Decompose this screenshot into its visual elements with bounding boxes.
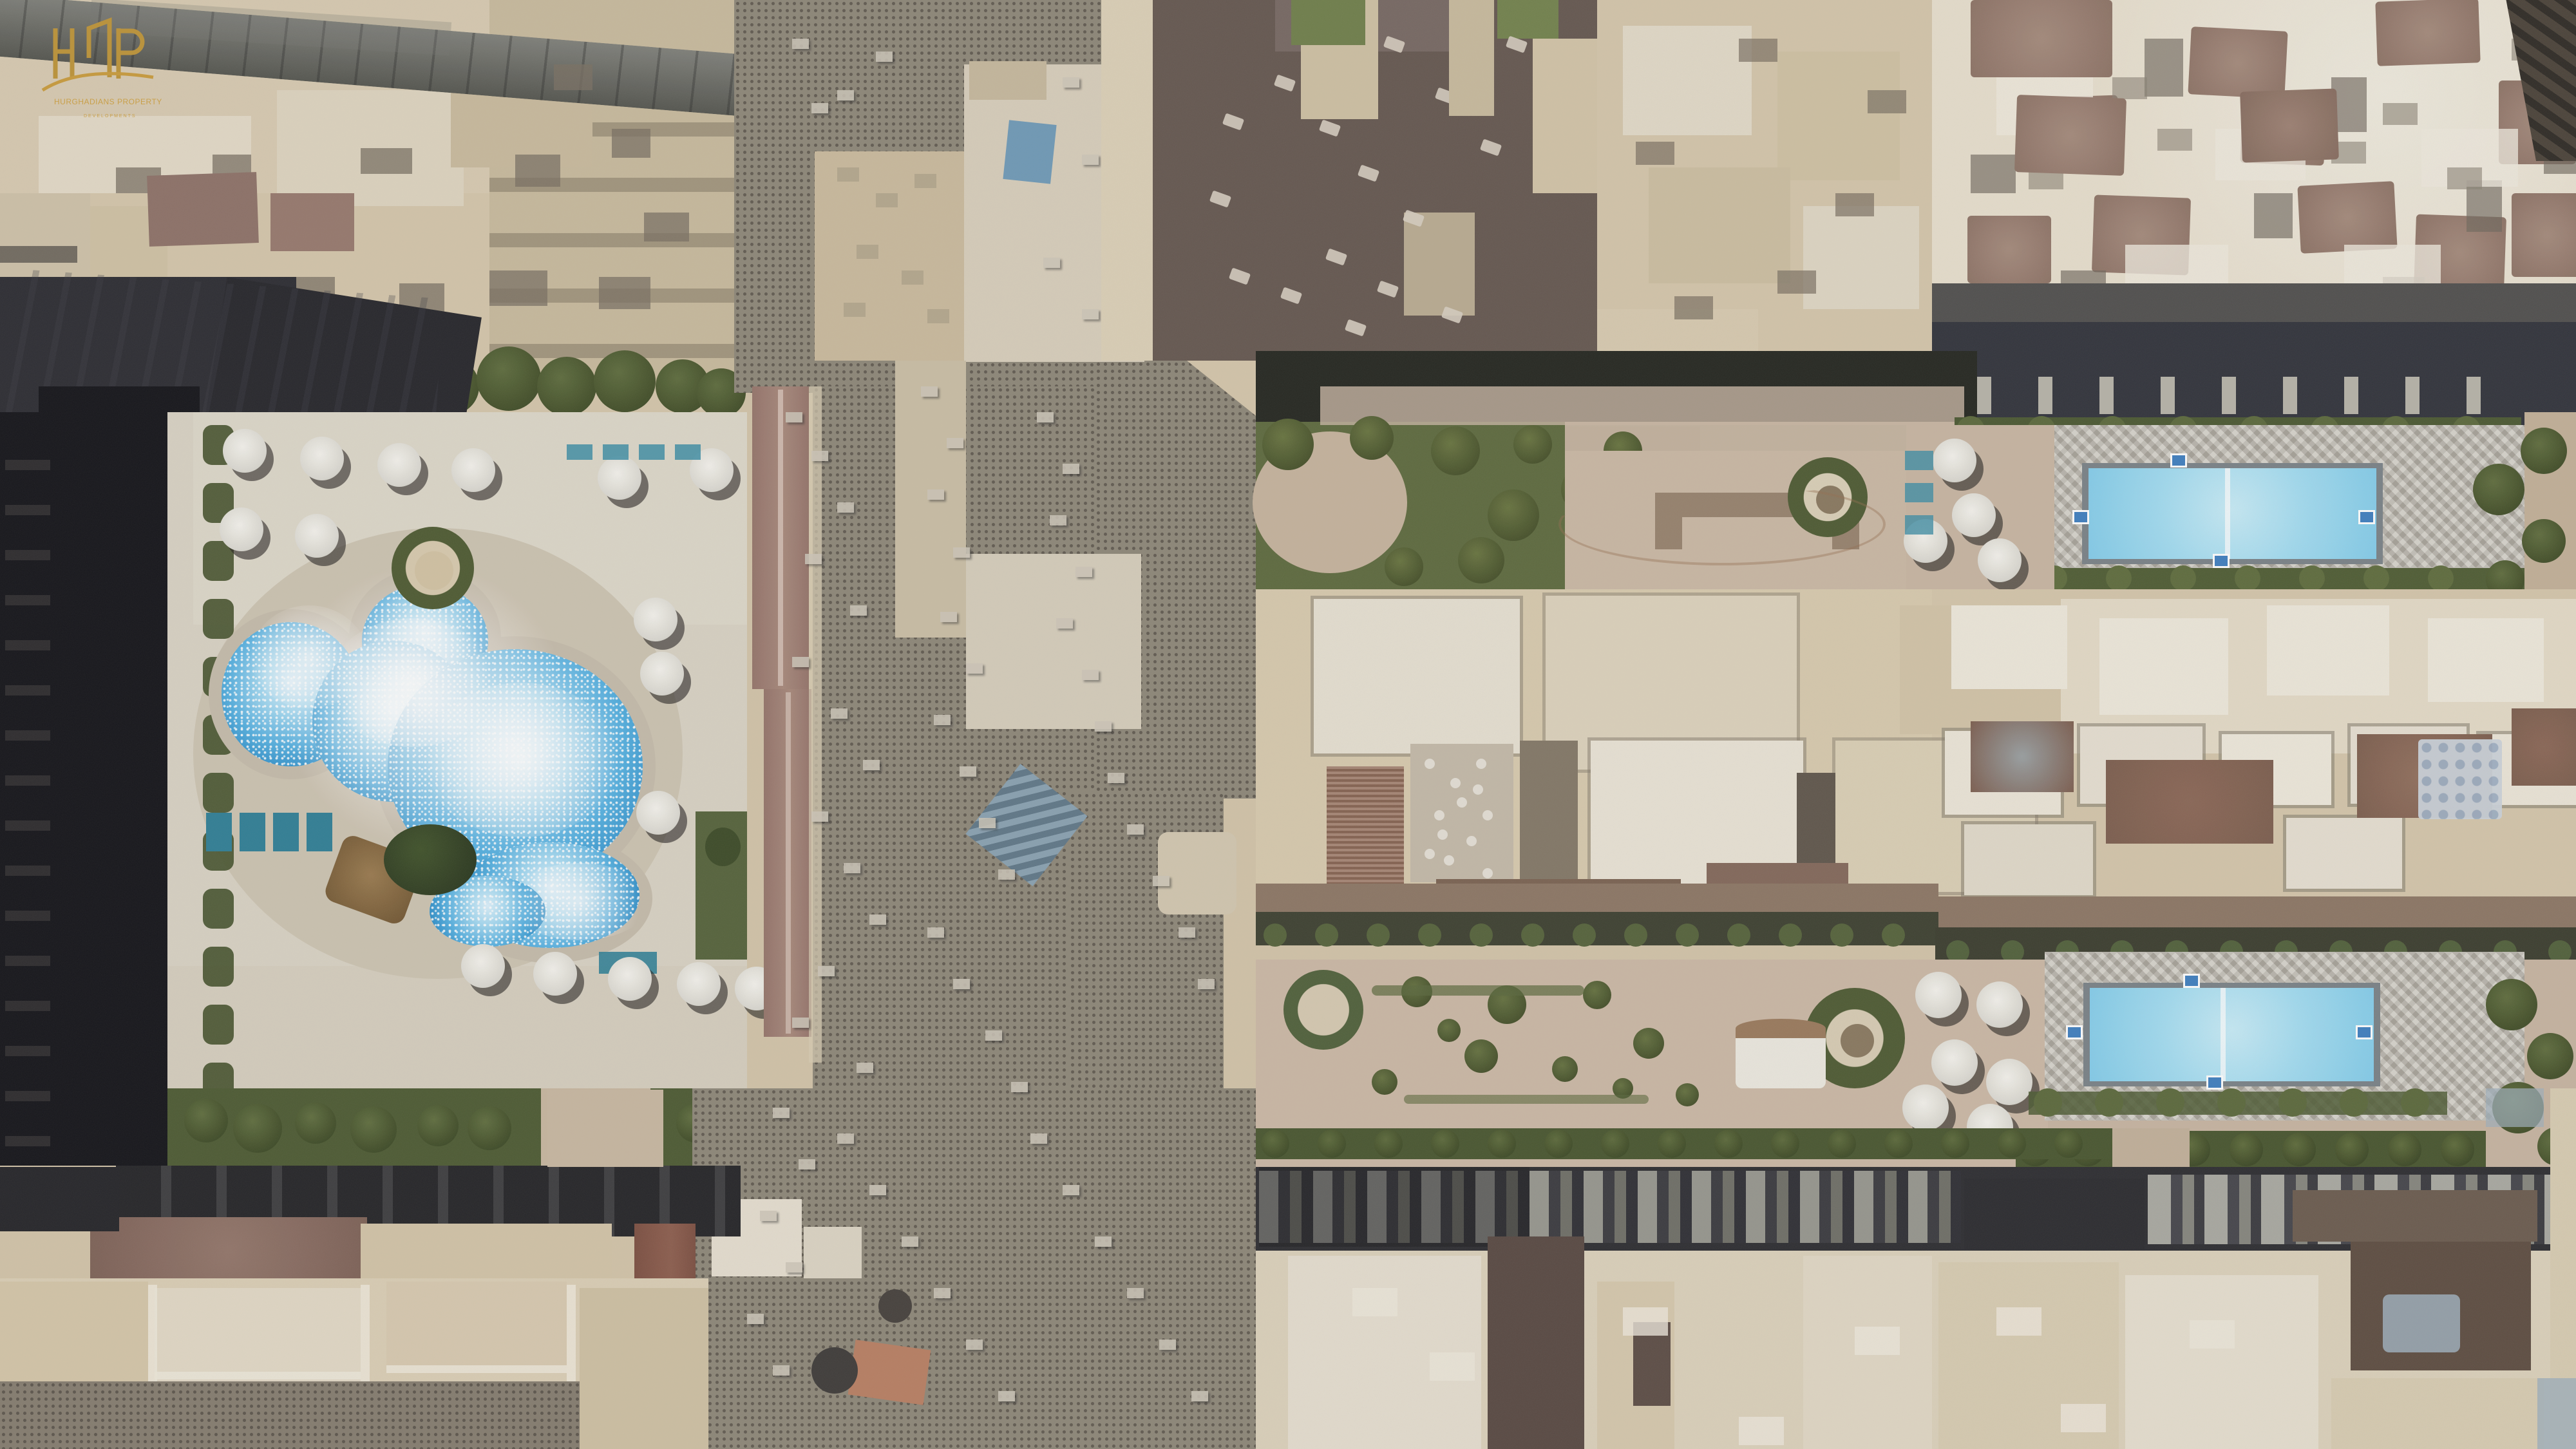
- svg-text:DEVELOPMENTS: DEVELOPMENTS: [84, 114, 137, 118]
- svg-text:HURGHADIANS PROPERTY: HURGHADIANS PROPERTY: [54, 97, 162, 106]
